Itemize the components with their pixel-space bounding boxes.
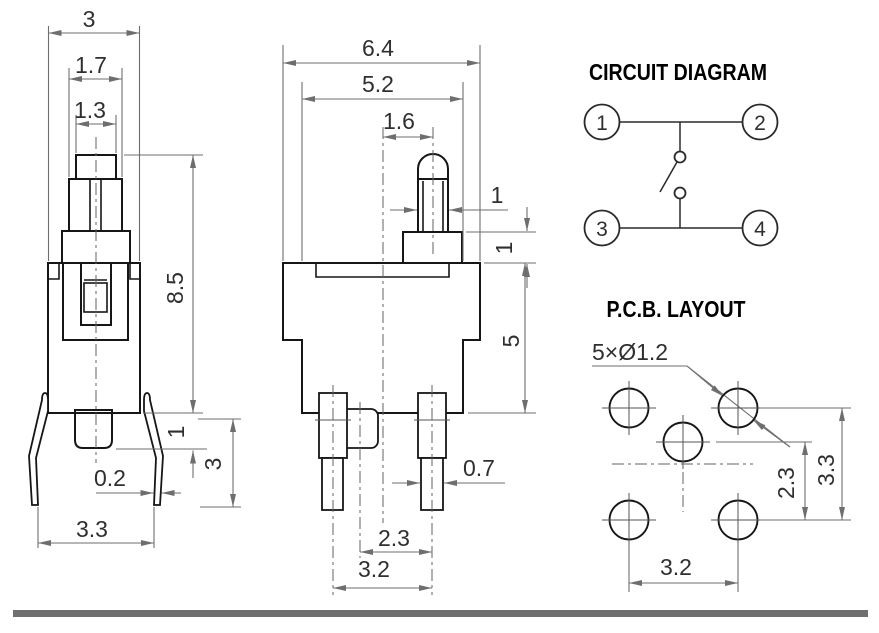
- side-stem-width-dim: 1: [491, 182, 504, 208]
- left-leg: [29, 393, 48, 505]
- front-height-dim: 8.5: [162, 272, 188, 304]
- terminal-1-label: 1: [596, 112, 608, 135]
- front-overall-width-dim: 3: [83, 6, 96, 32]
- locating-peg-front: [75, 410, 112, 448]
- body-front: [48, 263, 140, 413]
- technical-drawing-page: 3 1.7 1.3 8.5 1 3: [0, 0, 879, 633]
- switch-contact-top: [675, 152, 686, 163]
- side-body-height-dim: 5: [498, 335, 524, 348]
- pcb-center-offset-dim: 2.3: [773, 467, 799, 499]
- body-side: [283, 263, 480, 413]
- hole-bottom-right: [711, 493, 765, 547]
- side-view: 6.4 5.2 1.6 1 1 5 0.7: [283, 35, 536, 595]
- side-upper-body-width-dim: 5.2: [362, 71, 394, 97]
- side-peg-to-pin-dim: 2.3: [378, 525, 410, 551]
- front-stem-width-dim: 1.7: [75, 52, 107, 78]
- front-leg-length-dim: 3: [200, 458, 226, 471]
- switch-front-outline: [29, 137, 163, 505]
- switch-lever: [660, 162, 677, 192]
- terminal-4-label: 4: [754, 218, 766, 241]
- terminal-3-label: 3: [596, 218, 608, 241]
- front-leg-span-dim: 3.3: [76, 516, 108, 542]
- side-pin-width-dim: 0.7: [463, 455, 495, 481]
- hole-bottom-left: [602, 493, 656, 547]
- side-pin-pitch-dim: 3.2: [358, 556, 390, 582]
- side-stem-offset-dim: 1.6: [383, 108, 415, 134]
- pcb-layout: P.C.B. LAYOUT 5×Ø1.2: [592, 297, 851, 592]
- front-leg-thickness-dim: 0.2: [94, 465, 126, 491]
- hole-callout-leader: [592, 366, 790, 447]
- side-overall-width-dim: 6.4: [362, 35, 394, 61]
- pcb-column-pitch-dim: 3.2: [660, 554, 692, 580]
- hole-top-left: [602, 381, 656, 435]
- circuit-diagram: CIRCUIT DIAGRAM 1 2 3 4: [585, 60, 778, 246]
- front-cap-width-dim: 1.3: [74, 97, 106, 123]
- footer-bar: [13, 610, 868, 617]
- circuit-diagram-title: CIRCUIT DIAGRAM: [589, 60, 767, 86]
- pcb-row-pitch-dim: 3.3: [813, 454, 839, 486]
- front-view: 3 1.7 1.3 8.5 1 3: [29, 6, 241, 548]
- pcb-layout-title: P.C.B. LAYOUT: [607, 297, 746, 323]
- front-peg-protrusion-dim: 1: [163, 426, 189, 439]
- terminal-2-label: 2: [754, 112, 766, 135]
- hole-center: [656, 415, 710, 469]
- hole-top-right: [711, 381, 765, 435]
- side-boss-height-dim: 1: [491, 242, 517, 255]
- switch-contact-bottom: [675, 188, 686, 199]
- hole-callout-label: 5×Ø1.2: [592, 339, 668, 365]
